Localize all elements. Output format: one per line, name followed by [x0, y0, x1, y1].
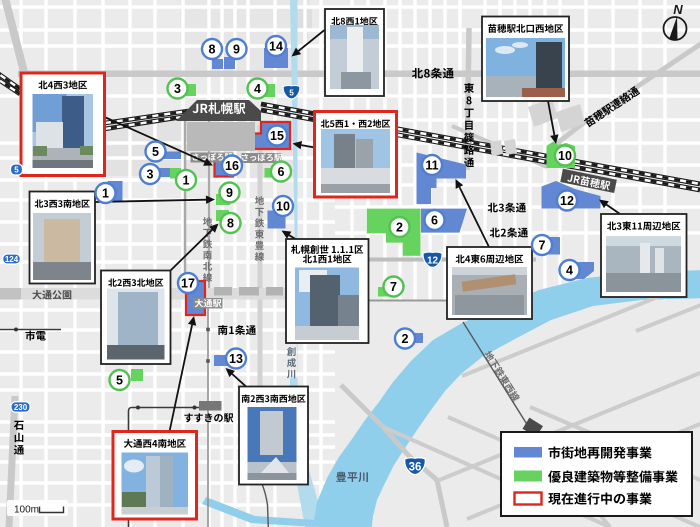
svg-text:100m: 100m [14, 505, 39, 516]
svg-text:230: 230 [14, 403, 28, 412]
svg-text:4: 4 [566, 264, 573, 278]
svg-text:17: 17 [181, 277, 195, 291]
svg-text:9: 9 [233, 43, 240, 57]
svg-text:3: 3 [147, 168, 154, 182]
svg-text:5: 5 [289, 88, 294, 97]
svg-text:14: 14 [269, 40, 283, 54]
svg-text:9: 9 [226, 186, 233, 200]
svg-text:1: 1 [102, 187, 109, 201]
svg-text:3: 3 [174, 82, 181, 96]
svg-text:2: 2 [402, 332, 409, 346]
svg-text:5: 5 [152, 145, 159, 159]
svg-text:1: 1 [183, 174, 190, 188]
svg-text:5: 5 [14, 165, 19, 174]
svg-text:6: 6 [278, 165, 285, 179]
svg-text:10: 10 [558, 149, 572, 163]
svg-text:15: 15 [270, 129, 284, 143]
svg-text:12: 12 [560, 194, 574, 208]
svg-text:16: 16 [225, 159, 239, 173]
svg-text:8: 8 [227, 217, 234, 231]
svg-text:124: 124 [5, 255, 19, 264]
svg-text:10: 10 [276, 200, 290, 214]
svg-text:6: 6 [431, 214, 438, 228]
svg-text:11: 11 [425, 159, 438, 173]
svg-text:13: 13 [229, 352, 243, 366]
svg-text:4: 4 [254, 82, 261, 96]
svg-text:7: 7 [539, 239, 546, 253]
svg-text:N: N [673, 2, 683, 17]
svg-text:5: 5 [116, 374, 123, 388]
svg-text:12: 12 [427, 256, 439, 267]
svg-text:7: 7 [390, 280, 397, 294]
svg-text:8: 8 [209, 43, 216, 57]
svg-text:36: 36 [409, 462, 422, 474]
svg-text:2: 2 [396, 221, 403, 235]
